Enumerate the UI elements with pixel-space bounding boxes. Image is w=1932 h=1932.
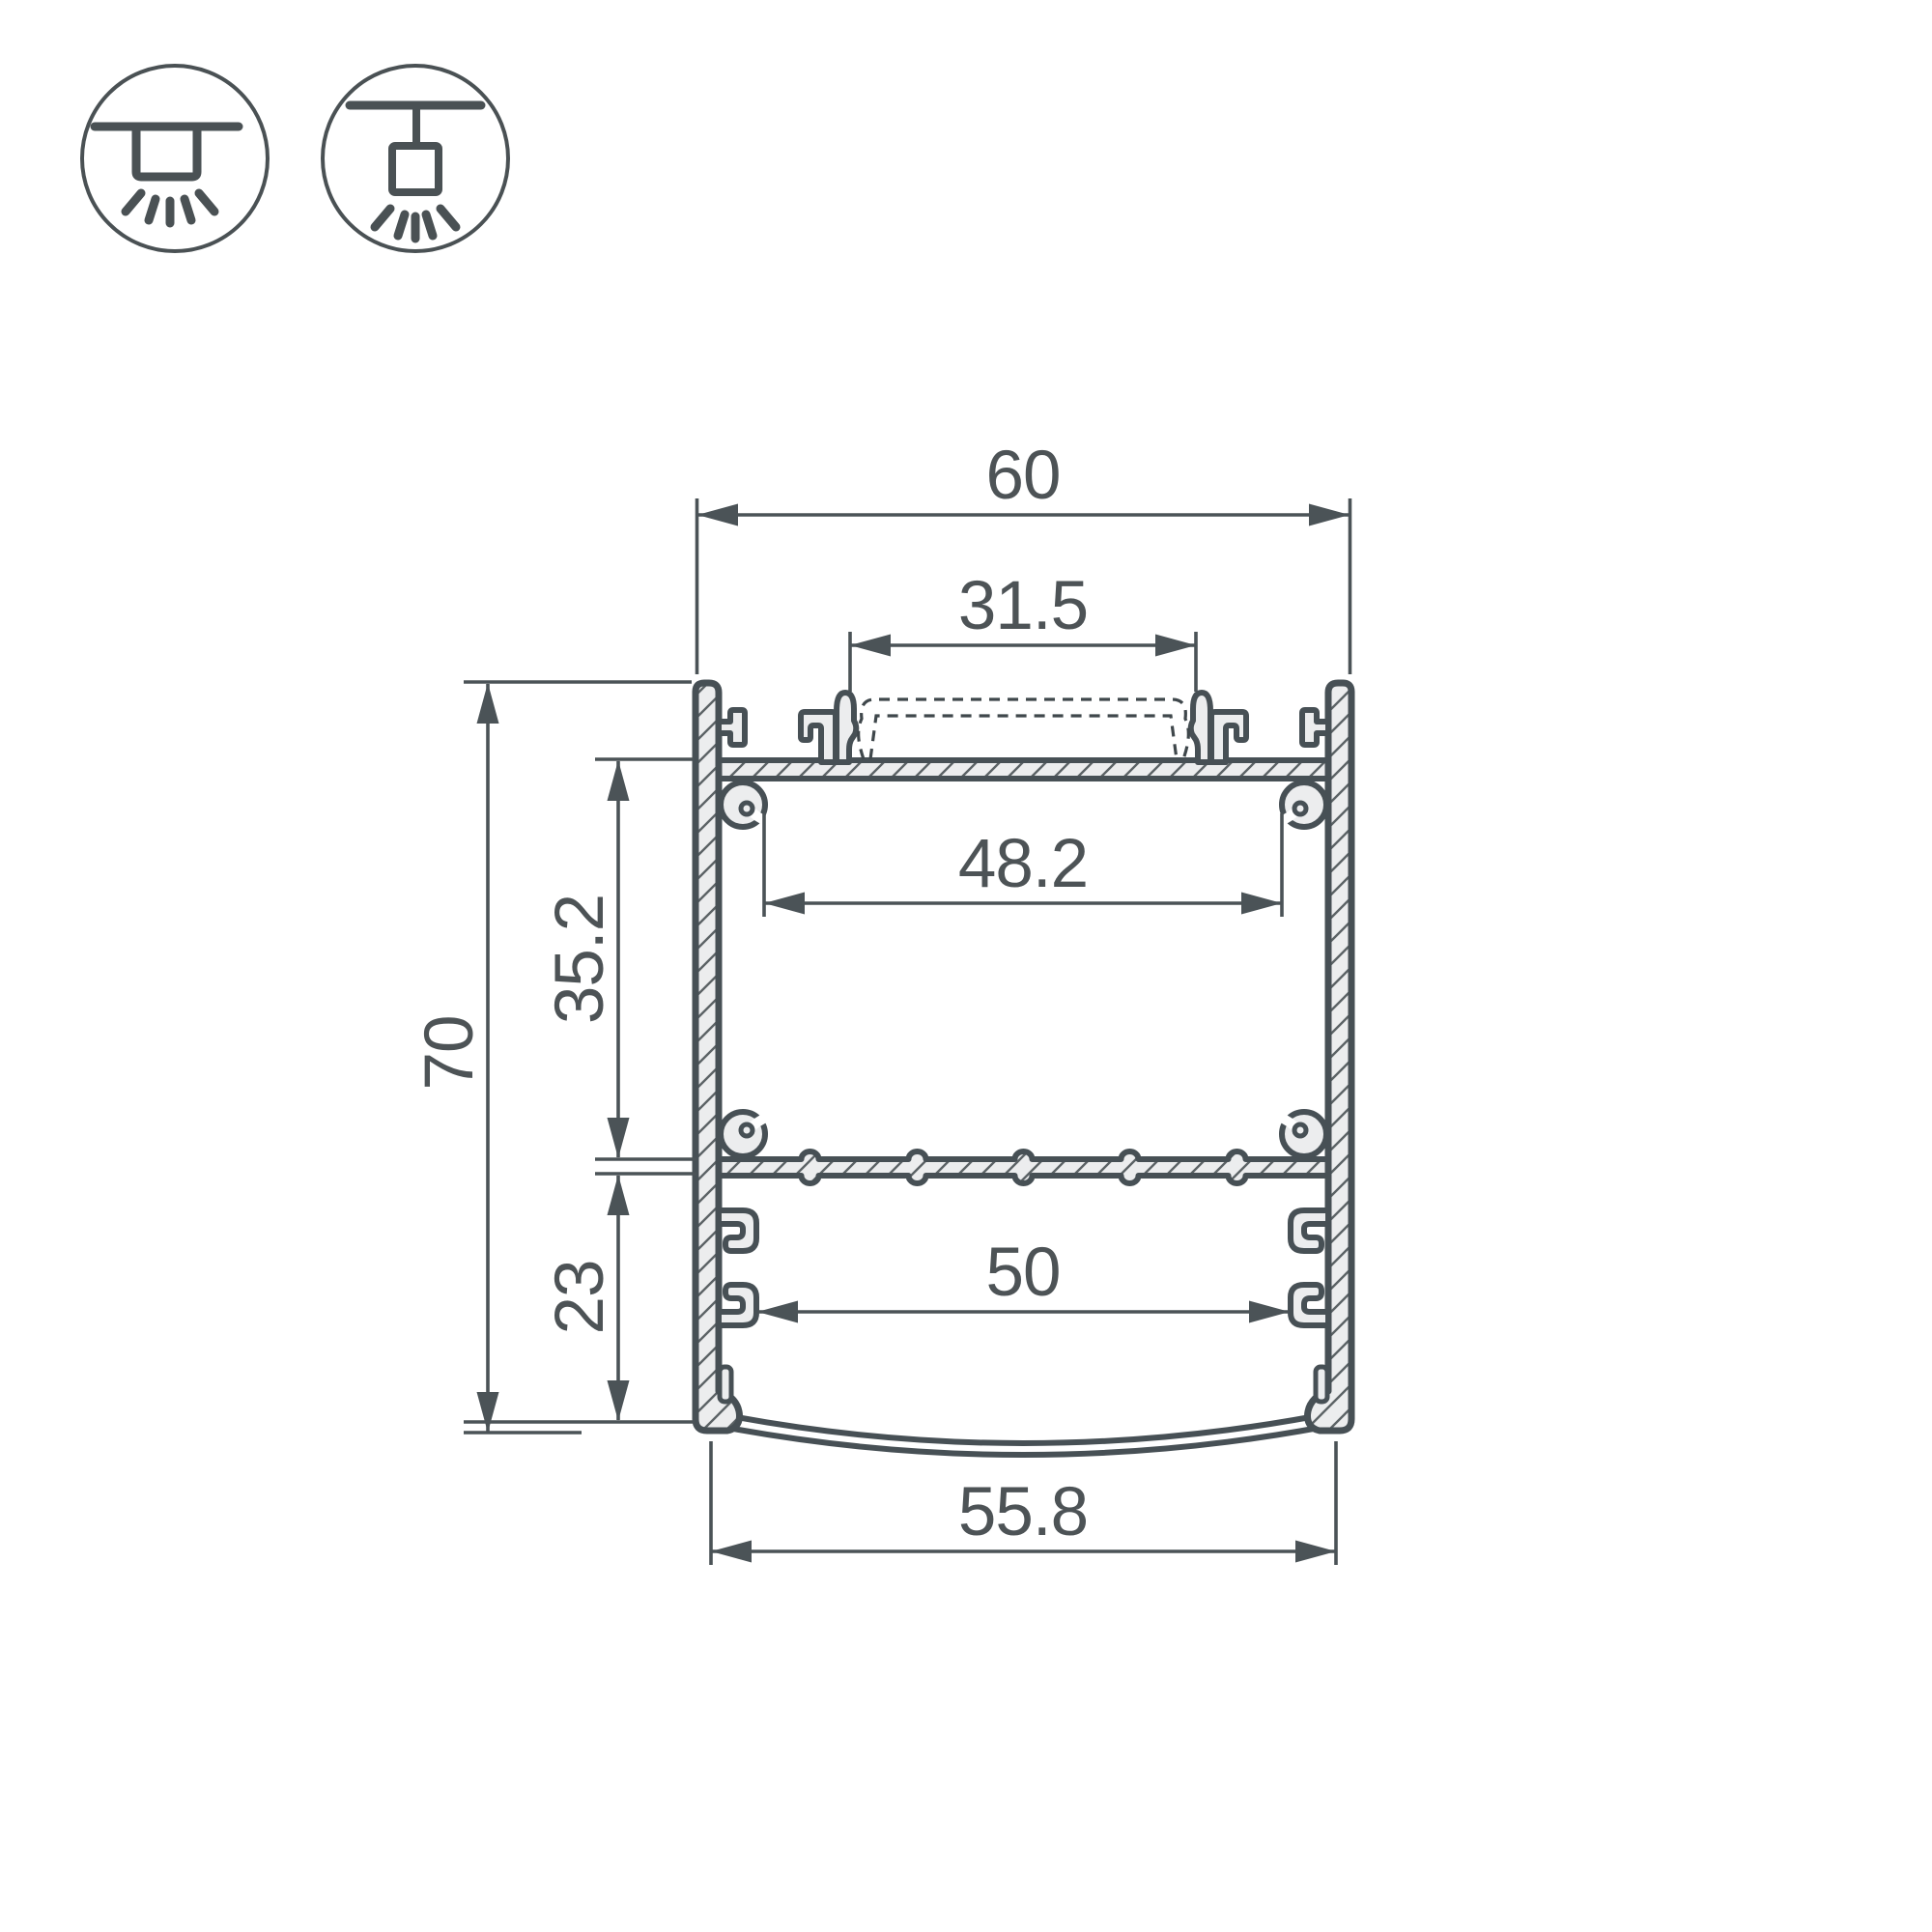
surface-ceiling-mount-icon [82, 66, 268, 251]
led-strip-dashed [859, 699, 1189, 759]
dimension-lower-chamber-height: 23 [464, 1174, 696, 1422]
profile-drawing: 60 31.5 48.2 50 [0, 0, 1932, 1932]
dimension-lower-chamber-width: 50 [757, 1235, 1290, 1323]
dimension-led-slot-width: 31.5 [850, 568, 1196, 692]
dimension-upper-chamber-height: 35.2 [542, 759, 696, 1159]
light-rays [126, 193, 214, 223]
dim-label-chamber-inner-width: 48.2 [958, 826, 1088, 902]
dim-label-lower-chamber-width: 50 [986, 1235, 1061, 1311]
dimension-diffuser-width: 55.8 [711, 1441, 1336, 1565]
mounting-icons [82, 66, 508, 251]
profile-cross-section [696, 683, 1351, 1455]
deck-plate [717, 760, 1330, 779]
technical-drawing-page: 60 31.5 48.2 50 [0, 0, 1932, 1932]
dim-label-overall-height: 70 [412, 1016, 488, 1091]
suspended-ceiling-mount-icon [323, 66, 508, 251]
middle-shelf [717, 1151, 1330, 1183]
light-rays [375, 209, 456, 239]
dim-label-led-slot-width: 31.5 [958, 568, 1088, 644]
dim-label-diffuser-width: 55.8 [958, 1474, 1088, 1550]
diffuser-lens [723, 1416, 1324, 1455]
dimension-chamber-inner-width: 48.2 [764, 813, 1282, 917]
dim-label-outer-width: 60 [986, 438, 1061, 514]
dimensions: 60 31.5 48.2 50 [412, 438, 1350, 1565]
dim-label-lower-chamber-height: 23 [542, 1261, 618, 1335]
dim-label-upper-chamber-height: 35.2 [542, 895, 618, 1024]
